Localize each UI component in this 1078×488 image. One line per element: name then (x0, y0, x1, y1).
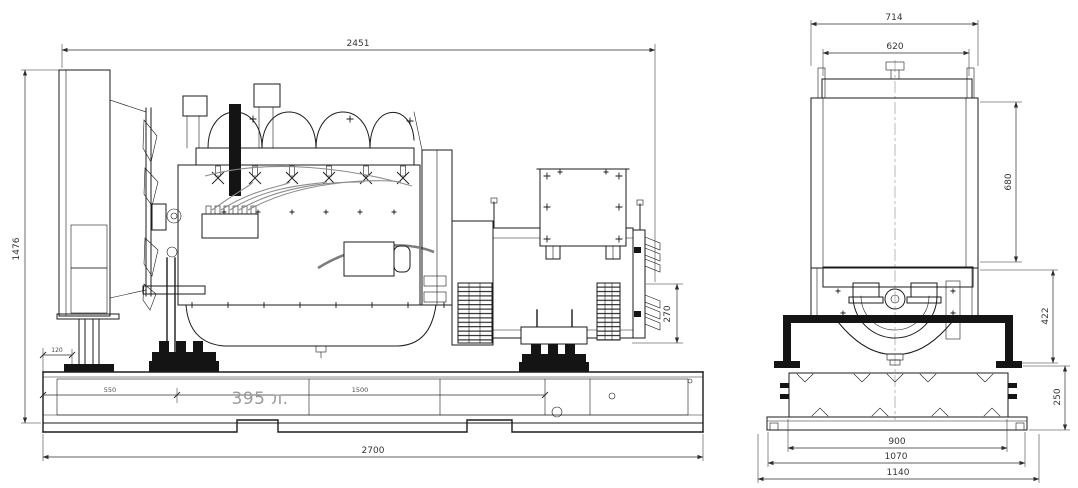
dim-120-label: 120 (51, 347, 63, 354)
dim-2700-label: 2700 (362, 446, 385, 456)
drain-port (552, 407, 562, 417)
dim-270-label: 270 (663, 305, 673, 322)
dim-1476-label: 1476 (12, 237, 22, 260)
dim-550-label: 550 (104, 386, 116, 394)
base-frame-side (43, 372, 703, 432)
dim-620-label: 620 (886, 42, 903, 52)
end-louvers (645, 237, 660, 330)
control-box (537, 169, 629, 259)
bottom-tank (823, 267, 973, 287)
front-view-dimensions: 714 620 680 422 250 900 1070 1140 (758, 13, 1070, 483)
dim-680-label: 680 (1004, 173, 1014, 190)
genset-technical-drawing: 2451 1476 2700 270 550 1500 120 395 л. (0, 0, 1078, 488)
dim-250-label: 250 (1053, 388, 1063, 405)
dim-1140-label: 1140 (887, 468, 910, 478)
intake-elbow (183, 96, 207, 116)
radiator-foot (64, 364, 114, 372)
skid-bottom (43, 420, 703, 432)
rear-engine-mount (519, 310, 589, 372)
starter-motor (344, 242, 394, 276)
dim-422-label: 422 (1041, 307, 1051, 324)
vibration-mount-left (853, 283, 879, 297)
bottom-plate (767, 417, 1027, 430)
oil-pan (186, 305, 436, 346)
radiator-side (57, 70, 146, 372)
dim-714-label: 714 (885, 13, 902, 23)
side-view: 2451 1476 2700 270 550 1500 120 395 л. (12, 39, 703, 461)
vibration-mount-right (911, 283, 937, 297)
front-engine-mount (143, 258, 219, 372)
dim-900-label: 900 (888, 437, 905, 447)
drain-plug (316, 346, 326, 352)
front-view: 714 620 680 422 250 900 1070 1140 (758, 13, 1070, 483)
starter-nose (394, 246, 410, 272)
exhaust-downpipe (229, 104, 241, 196)
breather-box (254, 84, 280, 107)
fuel-tank-side (57, 379, 688, 415)
dim-1070-label: 1070 (885, 452, 908, 462)
dim-2451-label: 2451 (347, 39, 370, 49)
dim-1500-label: 1500 (352, 386, 369, 394)
vent-grille-left (458, 283, 492, 343)
radiator-front (811, 62, 978, 315)
end-frame (633, 230, 645, 338)
injection-pump (202, 206, 258, 238)
tank-capacity-label: 395 л. (231, 389, 288, 409)
vent-grille-right (597, 283, 620, 340)
fuel-tank-front (767, 373, 1027, 430)
engine-side (178, 84, 452, 358)
